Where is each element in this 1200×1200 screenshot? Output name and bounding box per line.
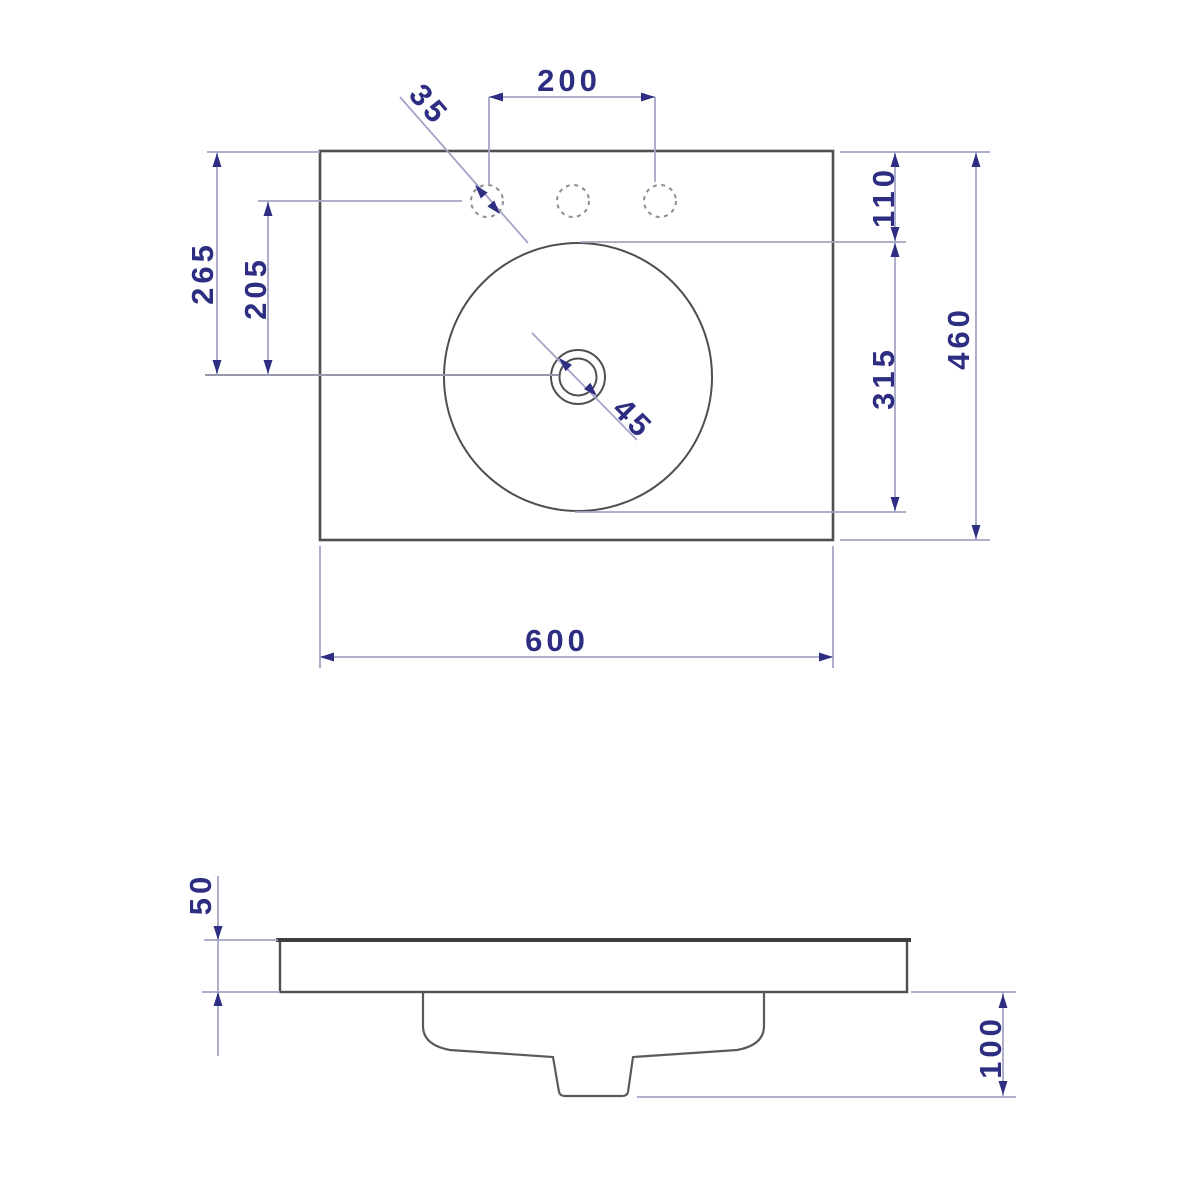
arrow-600-left xyxy=(320,653,334,662)
dim-label-edge-to-drain: 265 xyxy=(185,241,220,305)
arrow-600-right xyxy=(819,653,833,662)
dim-label-edge-to-bowl: 110 xyxy=(866,166,901,228)
basin-outline xyxy=(320,151,833,540)
arrow-205-top xyxy=(264,202,273,216)
drawing-canvas: 200 35 265 205 110 315 460 600 45 xyxy=(0,0,1200,1200)
arrow-200-right xyxy=(641,93,655,102)
dim-label-tap-spacing: 200 xyxy=(537,63,601,98)
side-dimension-labels: 50 100 xyxy=(183,873,1008,1079)
side-dimension-lines xyxy=(202,876,1016,1097)
dim-label-overall-height: 100 xyxy=(973,1015,1008,1079)
arrow-265-top xyxy=(213,153,222,167)
arrow-205-bottom xyxy=(264,360,273,374)
dim-label-waste-diameter: 45 xyxy=(606,391,661,446)
dim-label-tapline-to-drain: 205 xyxy=(238,256,273,320)
dim-label-overall-depth: 460 xyxy=(941,306,976,370)
dim-label-overall-width: 600 xyxy=(525,623,589,658)
bowl-profile xyxy=(423,992,764,1096)
arrow-50-bottom xyxy=(214,992,223,1006)
arrow-100-top xyxy=(999,994,1008,1008)
arrow-460-top xyxy=(972,153,981,167)
arrow-110-bottom xyxy=(891,227,900,241)
dim-label-tap-diameter: 35 xyxy=(402,77,456,132)
tap-hole-center xyxy=(557,185,589,217)
dim-label-rim-height: 50 xyxy=(183,873,218,915)
arrow-35-lower xyxy=(487,201,500,215)
side-dimension-arrows xyxy=(214,926,1008,1095)
tap-hole-right xyxy=(644,185,676,217)
rim-outline xyxy=(280,940,907,992)
side-view: 50 100 xyxy=(183,873,1016,1097)
dim-label-bowl-extent: 315 xyxy=(866,346,901,410)
arrow-50-top xyxy=(214,926,223,940)
arrow-315-top xyxy=(891,243,900,257)
arrow-460-bottom xyxy=(972,525,981,539)
arrow-110-top xyxy=(891,153,900,167)
technical-drawing-svg: 200 35 265 205 110 315 460 600 45 xyxy=(0,0,1200,1200)
arrow-100-bottom xyxy=(999,1081,1008,1095)
arrow-265-bottom xyxy=(213,360,222,374)
arrow-315-bottom xyxy=(891,497,900,511)
bowl-circle xyxy=(444,243,712,511)
plan-view: 200 35 265 205 110 315 460 600 45 xyxy=(185,63,990,668)
arrow-200-left xyxy=(489,93,503,102)
